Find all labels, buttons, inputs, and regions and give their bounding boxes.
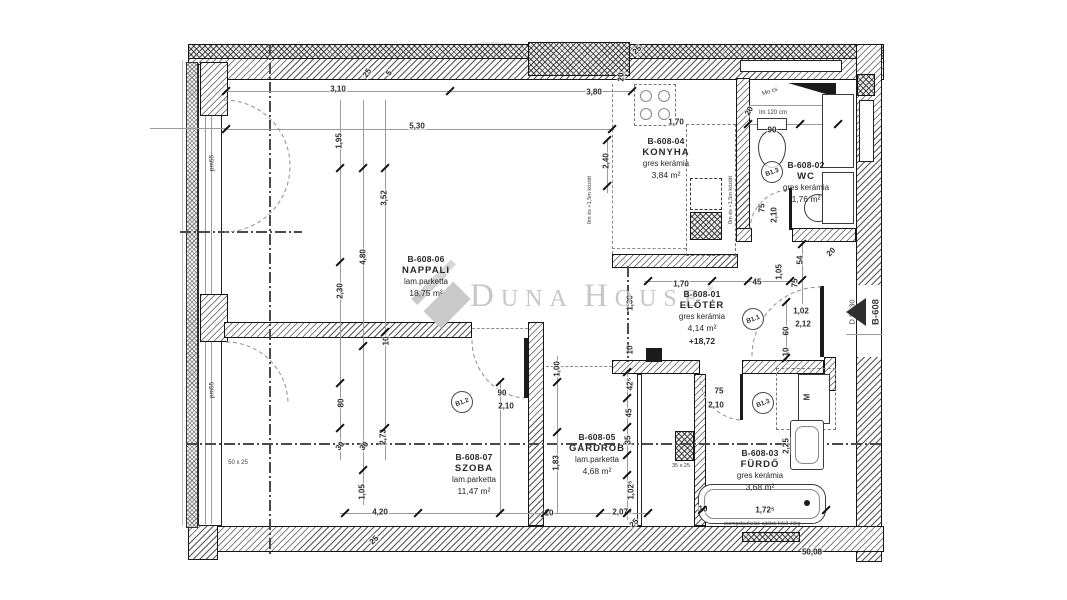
room-name: ELŐTÉR — [679, 300, 725, 312]
szoba-door-leaf — [524, 338, 528, 398]
kitchen-open-boundary — [612, 84, 613, 254]
dimension-label: 4,80 — [359, 248, 368, 266]
bath-sink-basin — [795, 426, 819, 464]
entry-door-leaf — [820, 286, 824, 357]
annotation: 0m és +1,5m között — [587, 176, 593, 224]
dim-line — [150, 128, 226, 129]
room-label-szoba: B-608-07SZOBAlam.parketta11,47 m² — [452, 452, 496, 497]
wall-top-shaft — [528, 42, 630, 76]
balcony-door-arc-lower — [224, 166, 290, 232]
axis-horizontal — [186, 443, 884, 445]
dunahouse-watermark: DUNA HOUSE ® — [470, 278, 714, 315]
balcony-door-arc-upper — [224, 100, 290, 166]
dimension-label: 3,80 — [585, 88, 603, 97]
stove-burner — [640, 108, 652, 120]
dimension-label: 1,02 — [792, 307, 810, 316]
axis-balcony-door — [180, 231, 302, 233]
room-id: B-608-02 — [783, 160, 829, 171]
dimension-label: 3,10 — [329, 85, 347, 94]
dimension-label: 20 — [617, 72, 626, 83]
annotation: D EL30 — [848, 299, 857, 324]
annotation: 35 x 25 — [672, 463, 690, 469]
dimension-label: 45 — [625, 408, 634, 419]
furdo-door-leaf — [740, 374, 743, 420]
room-floor: gres kerámia — [783, 183, 829, 193]
wc-riser-box — [822, 94, 854, 168]
dimension-label: 60 — [782, 326, 791, 337]
room-area: 4,68 m² — [569, 466, 625, 477]
dimension-label: 2,12 — [794, 320, 812, 329]
facade-strip — [186, 62, 198, 528]
dimension-label: 2,30 — [336, 282, 345, 300]
kitchen-sink — [690, 178, 722, 210]
room-label-fürdő: B-608-03FÜRDŐgres kerámia3,68 m² — [737, 448, 783, 493]
shaft-gardrob-furdo — [675, 431, 694, 461]
dimension-label: 54 — [796, 255, 805, 266]
room-label-gardrób: B-608-05GARDRÓBlam.parketta4,68 m² — [569, 432, 625, 477]
annotation: pm55 — [209, 382, 216, 398]
wall-wc-south-b — [792, 228, 856, 242]
dimension-label: 80 — [337, 398, 346, 409]
door-tag: B1.1 — [739, 305, 767, 333]
wall-right-slot — [859, 100, 874, 162]
room-area: 3,68 m² — [737, 482, 783, 493]
dimension-label: 1,02⁵ — [627, 479, 636, 500]
room-floor: gres kerámia — [679, 312, 725, 322]
room-floor: lam.parketta — [569, 455, 625, 465]
dimension-label: 1,00 — [553, 360, 562, 378]
dimension-label: 30 — [333, 439, 347, 453]
wall-stub-bath — [742, 532, 800, 542]
stove-burner — [658, 90, 670, 102]
room-name: WC — [783, 171, 829, 183]
wall-wc-west — [736, 78, 750, 242]
annotation: M — [803, 394, 812, 401]
room-area: 18,75 m² — [402, 288, 450, 299]
wall-top-slot — [740, 60, 842, 72]
dimension-label: 42⁵ — [626, 377, 635, 392]
room-label-előtér: B-608-01ELŐTÉRgres kerámia4,14 m²+18,72 — [679, 289, 725, 347]
watermark-letter: D — [470, 278, 501, 315]
room-floor: lam.parketta — [402, 277, 450, 287]
balcony-edge-line — [182, 60, 183, 526]
door-tag: B1.3 — [749, 389, 777, 417]
bathtub-inner — [704, 489, 820, 519]
dim-line — [224, 91, 632, 92]
room-floor: gres kerámia — [642, 159, 689, 169]
annotation: 0m és +1,5m között — [728, 176, 734, 224]
dim-line — [500, 380, 501, 514]
room-level: +18,72 — [679, 334, 725, 347]
annotation: Mo cs — [761, 87, 778, 98]
wall-gardrob-west — [528, 322, 544, 526]
room-id: B-608-03 — [737, 448, 783, 459]
entry-mark-line — [846, 334, 882, 335]
room-name: FÜRDŐ — [737, 459, 783, 471]
dimension-label: 90 — [767, 126, 778, 135]
annotation: B-608 — [871, 299, 882, 325]
dimension-label: 5,30 — [408, 122, 426, 131]
dimension-label: 20 — [824, 245, 838, 259]
room-area: 4,14 m² — [679, 323, 725, 334]
room-floor: lam.parketta — [452, 475, 496, 485]
annotation: pm55 — [209, 155, 216, 171]
dimension-label: 75 — [758, 203, 767, 214]
room-label-nappali: B-608-06NAPPALIlam.parketta18,75 m² — [402, 254, 450, 299]
room-label-wc: B-608-02WCgres kerámia1,76 m² — [783, 160, 829, 205]
dimension-label: 2,40 — [602, 152, 611, 170]
room-id: B-608-07 — [452, 452, 496, 463]
dimension-label: 10 — [626, 345, 635, 356]
partition-gardrob-east — [637, 374, 642, 526]
wall-right-shaft — [857, 74, 875, 96]
room-id: B-608-05 — [569, 432, 625, 443]
room-id: B-608-06 — [402, 254, 450, 265]
dimension-label: 1,95 — [335, 132, 344, 150]
dimension-label: 1,72⁵ — [754, 506, 775, 515]
dim-line — [802, 242, 803, 304]
bathtub-drain — [804, 500, 810, 506]
dimension-label: 2,10 — [707, 401, 725, 410]
dimension-label: 1,70 — [667, 118, 685, 127]
kitchen-hob-block — [690, 212, 722, 240]
room-name: NAPPALI — [402, 265, 450, 277]
room-name: SZOBA — [452, 463, 496, 475]
floorplan-canvas: DUNA HOUSE ® B-608-04KONYHAgres kerámia3… — [0, 0, 1067, 600]
dimension-label: 1,05 — [775, 263, 784, 281]
dimension-label: 3,52 — [380, 189, 389, 207]
stove-burner — [640, 90, 652, 102]
room-floor: gres kerámia — [737, 471, 783, 481]
axis-vertical — [269, 44, 271, 556]
dim-line — [385, 100, 386, 460]
room-id: B-608-04 — [642, 136, 689, 147]
dimension-label: 50,08 — [801, 548, 823, 557]
room-id: B-608-01 — [679, 289, 725, 300]
column-eloter — [646, 348, 662, 362]
szoba-door-header — [472, 328, 528, 329]
room-label-konyha: B-608-04KONYHAgres kerámia3,84 m² — [642, 136, 689, 181]
dimension-label: 2,10 — [770, 206, 779, 224]
room-area: 1,76 m² — [783, 194, 829, 205]
dimension-label: 1,83 — [552, 454, 561, 472]
dimension-label: 75 — [714, 387, 725, 396]
room-name: KONYHA — [642, 147, 689, 159]
wall-wc-south-a — [736, 228, 752, 242]
dimension-label: 4,20 — [371, 508, 389, 517]
room-area: 3,84 m² — [642, 170, 689, 181]
kitchen-counter-edge — [612, 248, 686, 249]
dimension-label: 10 — [382, 336, 391, 347]
szoba-balcony-door-arc — [226, 342, 288, 404]
door-tag: B1.2 — [448, 388, 476, 416]
annotation: lm 120 cm — [759, 110, 787, 116]
wall-kitchen-south — [612, 254, 738, 268]
dimension-label: 45 — [752, 278, 763, 287]
annotation: 50 x 25 — [228, 460, 248, 466]
dimension-label: 1,05 — [358, 483, 367, 501]
room-name: GARDRÓB — [569, 443, 625, 455]
facade-pillar-top — [200, 62, 228, 116]
annotation: csempeburkolat: ajtótok felső éléig — [724, 521, 801, 527]
dimension-label: 90 — [497, 389, 508, 398]
dim-tick — [643, 508, 652, 517]
room-area: 11,47 m² — [452, 486, 496, 497]
dimension-label: 30 — [357, 439, 371, 453]
dimension-label: 2,10 — [497, 402, 515, 411]
